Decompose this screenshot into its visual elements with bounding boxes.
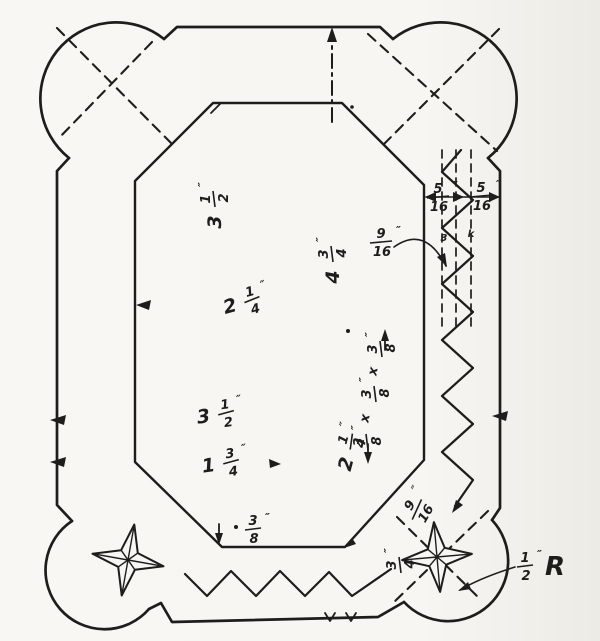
inch-mark: ″ [196, 182, 209, 187]
inch-mark: ″ [453, 179, 458, 192]
label-denominator: 16 [473, 199, 491, 214]
dim-label-notch-col-x2: x [357, 412, 374, 424]
inch-mark: ″ [337, 420, 351, 428]
label-denominator: 4 [403, 559, 418, 569]
dot-3 [350, 105, 354, 109]
dim-arrow-mid [453, 192, 464, 202]
dot-1 [346, 329, 350, 333]
label-numerator: 3 [317, 249, 332, 258]
label-denominator: 16 [430, 200, 448, 215]
dim-label-band-depth: 916″ [370, 224, 401, 260]
fraction-bar [399, 557, 401, 573]
label-whole: 3 [195, 405, 211, 429]
label-denominator: 16 [373, 245, 391, 260]
label-whole: 1 [200, 454, 216, 478]
label-numerator: 5 [476, 181, 485, 196]
inch-mark: ″ [537, 548, 542, 561]
dim-label-height-mid: 434″ [314, 237, 350, 285]
label-numerator: 3 [385, 560, 400, 569]
border-top [164, 27, 393, 39]
dim-label-width-lower-2: 134″ [199, 442, 250, 484]
label-denominator: 4 [353, 437, 370, 451]
label-numerator: 1 [520, 551, 529, 566]
label-numerator: 1 [219, 397, 230, 413]
dim-label-corner-radius: 12″R [517, 548, 565, 584]
inch-mark: ″ [240, 442, 247, 456]
label-numerator: 3 [366, 344, 381, 353]
label-numerator: 3 [360, 389, 375, 398]
label-text: x [365, 365, 382, 377]
fraction-bar [245, 528, 261, 530]
dim-label-width-center: 214″ [219, 278, 273, 325]
label-denominator: 2 [217, 193, 232, 202]
label-text: k [468, 229, 476, 240]
fraction-bar [370, 241, 392, 243]
label-text: x [357, 412, 374, 424]
dim-label-notch-col-x1: x [365, 365, 382, 377]
fraction-bar [331, 246, 333, 262]
label-denominator: 8 [370, 436, 385, 445]
inch-mark: ″ [259, 278, 267, 292]
border-bottom [149, 602, 404, 622]
radius-letter: R [545, 552, 565, 582]
label-whole: 4 [322, 270, 344, 284]
fraction-bar [374, 386, 376, 402]
label-denominator: 8 [384, 343, 399, 352]
dim-label-stray-3: 3 [441, 233, 448, 244]
label-denominator: 4 [335, 248, 350, 258]
label-denominator: 2 [223, 415, 234, 431]
dot-2 [234, 525, 238, 529]
tick-marks [211, 104, 385, 621]
inch-mark: ″ [363, 332, 376, 337]
dim-label-notch-col-2: 38″ [357, 377, 393, 402]
label-numerator: 9 [376, 227, 385, 242]
label-denominator: 8 [378, 388, 393, 397]
tick-octagon-top-left [211, 104, 220, 113]
inch-mark: ″ [496, 178, 501, 191]
inch-mark: ″ [235, 393, 242, 407]
dim-label-stray-k: k [468, 229, 476, 240]
four-point-star [93, 525, 164, 596]
label-whole: 3 [204, 215, 226, 228]
centerline-top-right [368, 29, 499, 151]
inch-mark: ″ [314, 237, 327, 242]
octagon-panel [135, 103, 424, 547]
label-numerator: 3 [248, 514, 257, 529]
inch-mark: ″ [357, 377, 370, 382]
corner-arc-bottom-right [404, 520, 508, 621]
label-numerator: 1 [336, 433, 353, 446]
dim-label-zigzag-tooth: 34″ [382, 548, 418, 573]
centerline-arrowhead [327, 27, 337, 42]
arrow-small-right [269, 459, 281, 468]
dim-label-notch-bottom: 38″ [245, 511, 270, 547]
dim-label-notch-col-1: 38″ [363, 332, 399, 357]
zigzag-horizontal [185, 569, 391, 596]
label-denominator: 2 [521, 569, 530, 584]
inch-mark: ″ [349, 425, 362, 430]
technical-drawing-figure: 312″434″214″312″134″38″38″x38″x38″214″51… [0, 0, 600, 641]
corner-arc-top-right [393, 22, 517, 158]
fraction-bar [517, 565, 533, 567]
label-denominator: 8 [249, 532, 258, 547]
arrow-octagon-left [136, 300, 151, 310]
label-text: 3 [441, 233, 448, 244]
corner-arcs [40, 22, 516, 629]
edge-arrows [50, 300, 508, 548]
fraction-bar [380, 341, 382, 357]
drawing-sheet: 312″434″214″312″134″38″38″x38″x38″214″51… [0, 0, 600, 641]
inch-mark: ″ [382, 548, 395, 553]
dim-label-width-upper: 312″ [196, 182, 232, 229]
corner-centerlines [57, 28, 499, 605]
arrow-octagon-corner [344, 538, 356, 548]
centerline-top-left [57, 28, 172, 144]
fraction-bar [213, 191, 215, 207]
label-denominator: 4 [248, 301, 262, 318]
label-numerator: 1 [199, 194, 214, 203]
zigzag-vertical-arrowhead [452, 500, 463, 513]
label-denominator: 4 [227, 464, 239, 480]
leader-9-16 [394, 239, 446, 266]
inch-mark: ″ [396, 224, 401, 237]
star-inlays [93, 522, 472, 595]
label-numerator: 3 [224, 446, 235, 462]
corner-arc-top-left [40, 22, 164, 158]
inch-mark: ″ [409, 483, 423, 494]
dim-label-width-lower: 312″ [194, 393, 245, 435]
dimension-labels: 312″434″214″312″134″38″38″x38″x38″214″51… [194, 178, 565, 584]
label-numerator: 5 [433, 182, 442, 197]
border-left [57, 158, 72, 521]
inch-mark: ″ [265, 511, 270, 524]
label-whole: 2 [221, 294, 239, 319]
label-whole: 2 [334, 455, 359, 473]
